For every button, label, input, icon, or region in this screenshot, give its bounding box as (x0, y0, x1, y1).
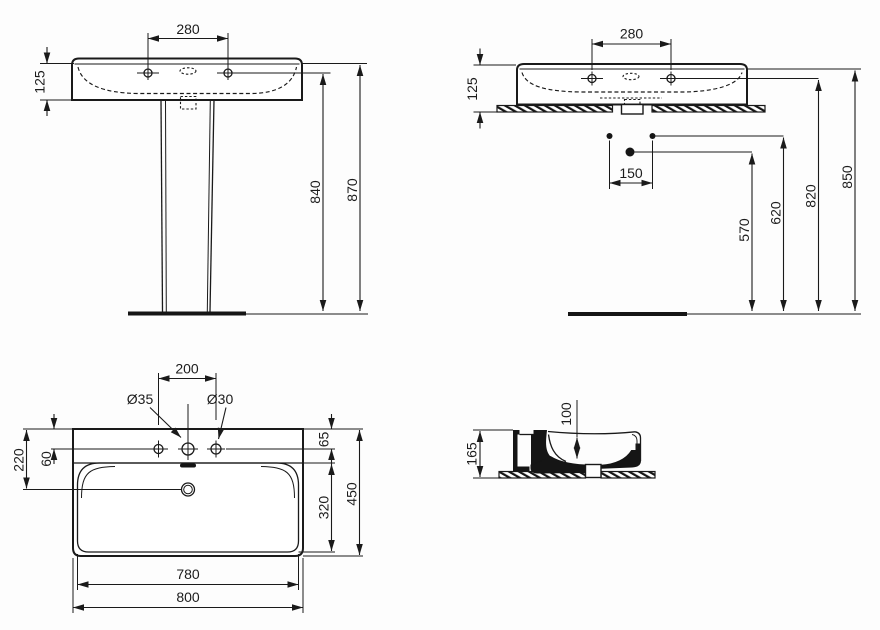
shelf-strip-right (601, 472, 655, 479)
pedestal (161, 100, 214, 312)
dim-tap-line-height: 820 (803, 80, 819, 311)
dim-label-200: 200 (175, 361, 199, 377)
dim-label-150: 150 (619, 165, 643, 181)
dim-label-220: 220 (11, 448, 27, 472)
wall-bracket-strip-left (497, 106, 613, 113)
technical-drawing-page: 280 125 840 870 (0, 0, 880, 630)
dim-label-320: 320 (316, 496, 332, 520)
dia-label-30: Ø30 (207, 391, 234, 407)
view-front-pedestal: 280 125 840 870 (32, 21, 369, 314)
drain-dot (626, 148, 635, 157)
wall-bracket-strip-right (652, 106, 765, 113)
dim-label-570: 570 (736, 218, 752, 242)
view-section: 165 100 (464, 400, 656, 478)
drain-outlet-box (586, 465, 602, 478)
dim-label-125: 125 (464, 77, 480, 101)
dia-label-35: Ø35 (127, 391, 154, 407)
view-front-wall-hung: 280 125 150 570 620 820 (464, 26, 861, 315)
dim-label-820: 820 (803, 184, 819, 208)
dim-bowl-inner-depth: 100 (558, 400, 577, 459)
dim-label-125: 125 (32, 70, 48, 94)
dim-label-65: 65 (316, 432, 332, 448)
dim-label-60: 60 (38, 451, 54, 467)
fixing-dot-left (607, 133, 613, 139)
dim-label-850: 850 (839, 165, 855, 189)
dim-label-780: 780 (176, 566, 200, 582)
dim-label-840: 840 (307, 180, 323, 204)
dim-label-165: 165 (464, 442, 480, 466)
dim-front-height: 125 (32, 47, 75, 116)
view-plan: 200 Ø35 Ø30 220 60 (11, 361, 364, 614)
dim-label-870: 870 (344, 178, 360, 202)
dim-overall-height: 165 (464, 430, 514, 478)
dim-label-100: 100 (558, 402, 574, 426)
dim-front-height: 125 (464, 49, 516, 129)
dim-bowl-width: 780 (78, 554, 299, 590)
dim-label-280: 280 (620, 26, 644, 42)
drain-outlet-box (622, 105, 644, 115)
washbasin-dimension-drawing: 280 125 840 870 (0, 0, 880, 630)
dim-label-620: 620 (768, 201, 784, 225)
dim-height-to-tap-line: 840 (307, 74, 323, 311)
fixing-dot-right (650, 133, 656, 139)
dim-label-450: 450 (344, 482, 360, 506)
dim-fixing-height: 620 (768, 138, 784, 312)
dim-drain-height: 570 (736, 154, 752, 312)
section-back-wall (513, 430, 530, 472)
far-rim-edge (548, 432, 635, 434)
dim-label-280: 280 (176, 21, 200, 37)
dim-label-800: 800 (176, 589, 200, 605)
